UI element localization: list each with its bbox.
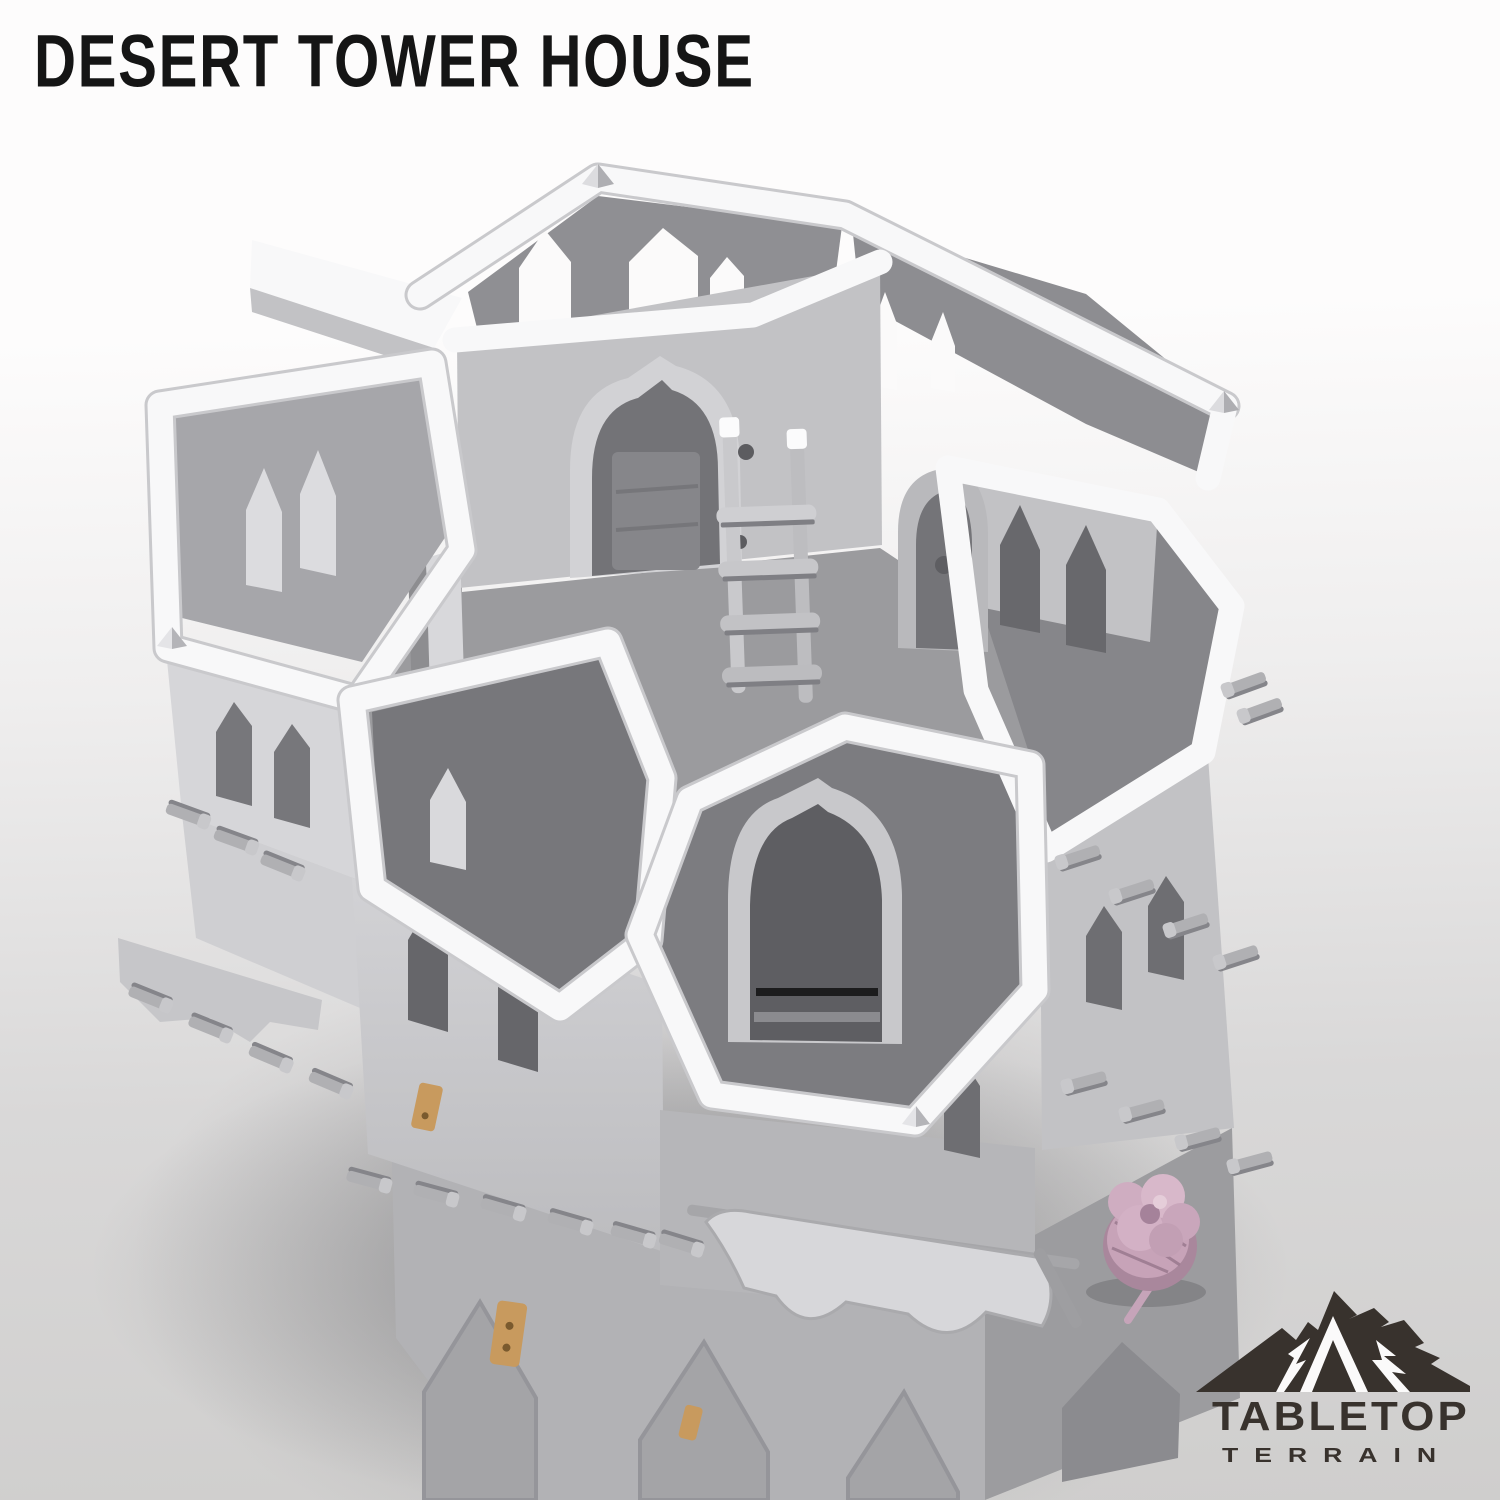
- logo-wordmark: TABLETOP: [1212, 1393, 1470, 1439]
- front-arch-recess: [750, 804, 882, 1042]
- product-page: { "title": "DESERT TOWER HOUSE", "logo":…: [0, 0, 1500, 1500]
- product-render: TABLETOP TERRAIN: [0, 0, 1500, 1500]
- door-panel: [612, 452, 700, 570]
- logo-subtitle: TERRAIN: [1222, 1445, 1452, 1467]
